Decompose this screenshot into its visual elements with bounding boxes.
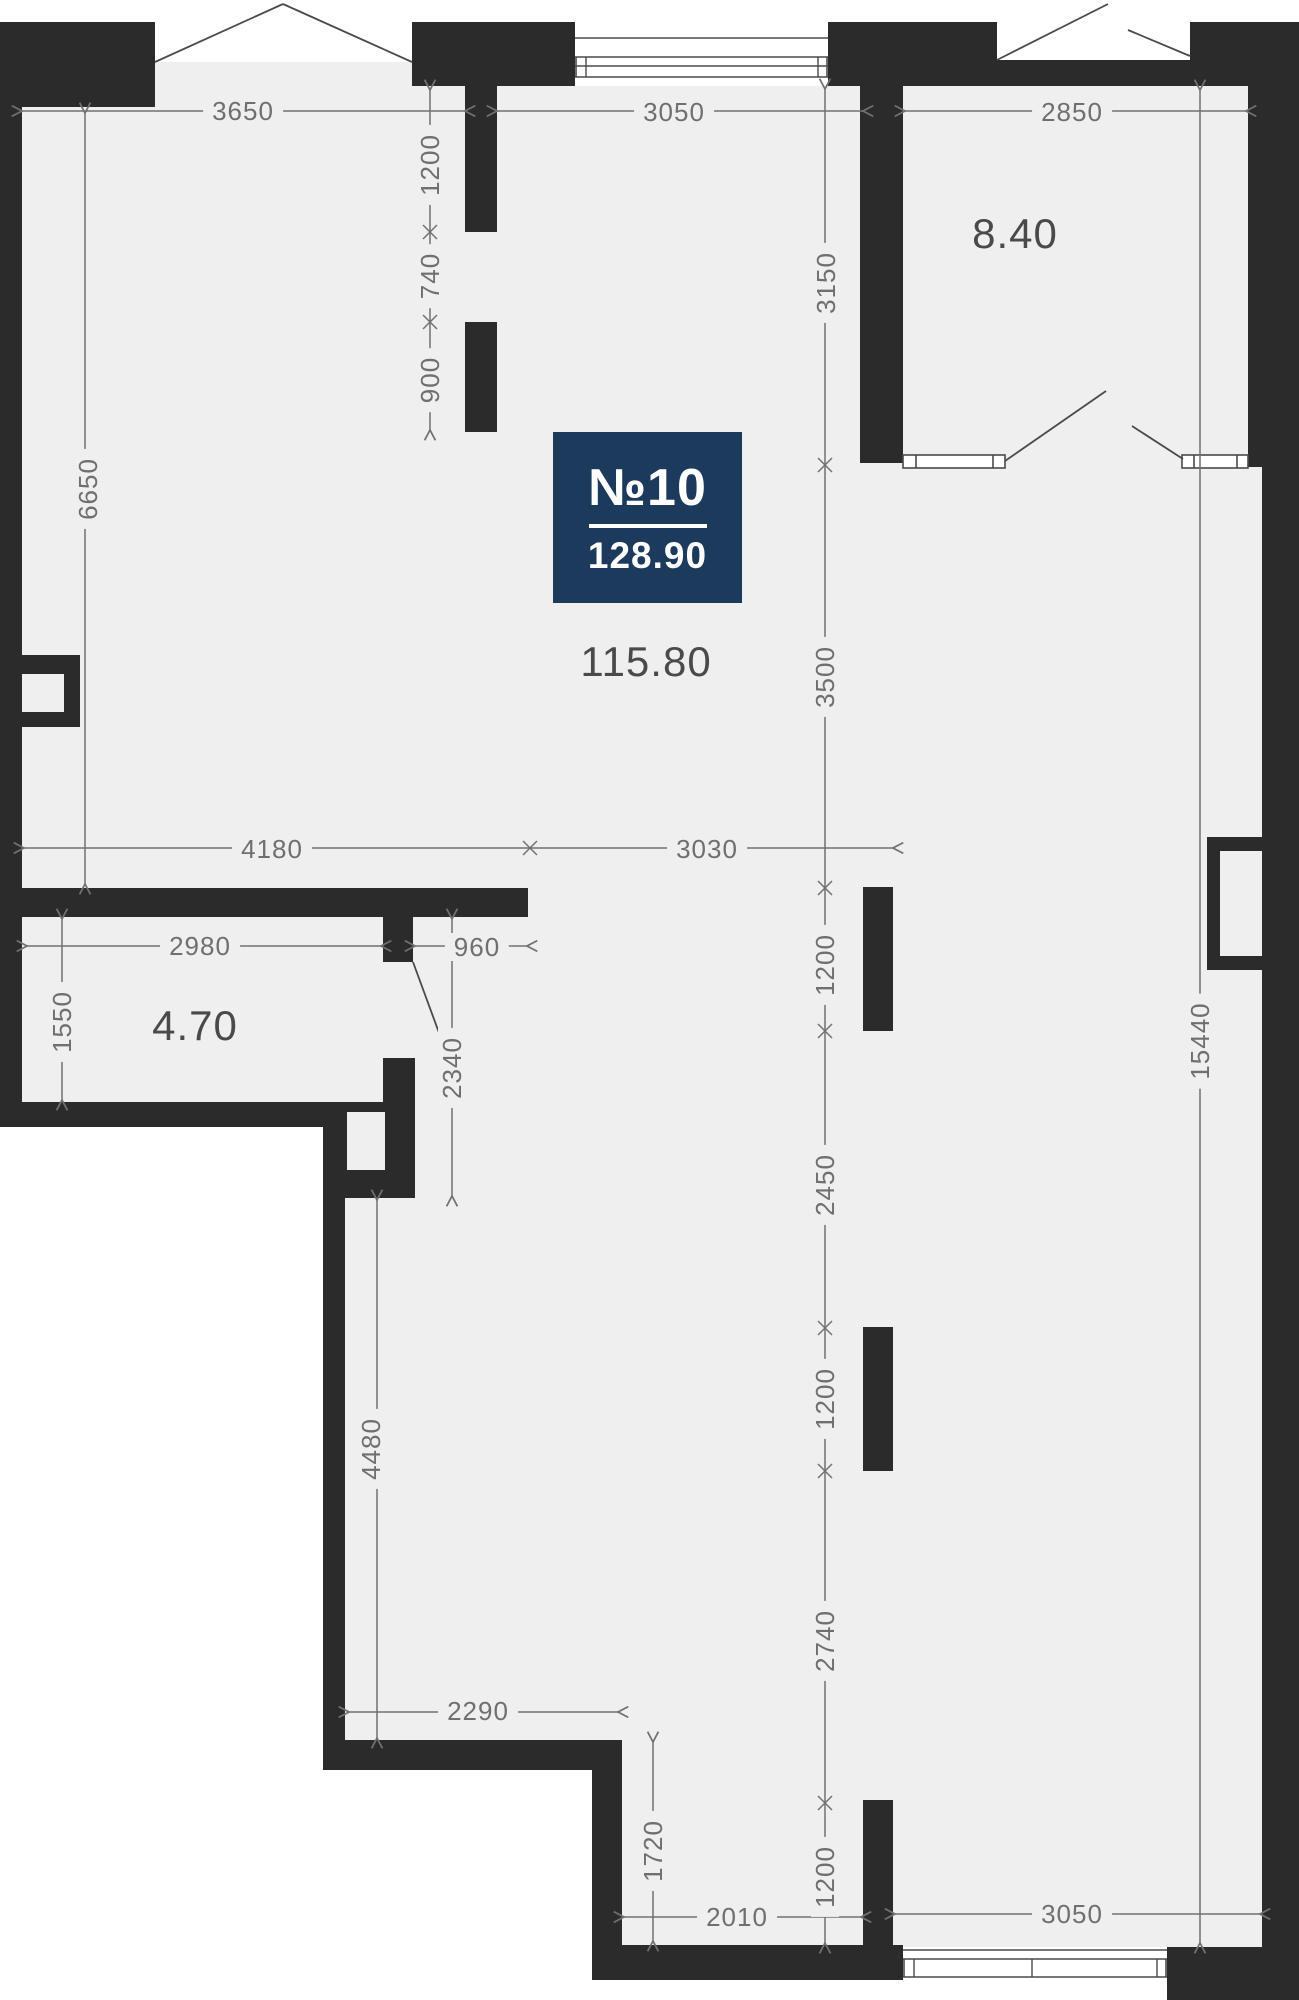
dim-label: 3050 xyxy=(634,98,714,126)
dim-label: 740 xyxy=(416,244,444,308)
room-area-main: 115.80 xyxy=(580,641,711,683)
wall-segment xyxy=(1262,467,1299,1947)
wall-segment xyxy=(0,888,528,917)
dim-label: 2450 xyxy=(811,1145,839,1225)
dim-label: 6650 xyxy=(74,449,102,529)
dim-label: 900 xyxy=(416,348,444,412)
wall-segment xyxy=(0,22,155,107)
room-area-loggia: 8.40 xyxy=(972,213,1058,255)
duct-cavity-right xyxy=(1220,851,1262,956)
dim-label: 2290 xyxy=(438,1697,518,1725)
floorplan-drawing xyxy=(0,0,1299,2000)
dim-label: 1200 xyxy=(811,1359,839,1439)
dim-label: 1720 xyxy=(639,1811,667,1891)
wall-pier xyxy=(863,1327,893,1471)
dim-label: 960 xyxy=(445,933,509,961)
dim-label: 1200 xyxy=(811,1837,839,1917)
unit-badge: №10 128.90 xyxy=(553,432,742,603)
dim-label: 2850 xyxy=(1032,98,1112,126)
dim-label: 3650 xyxy=(203,97,283,125)
dim-label: 3050 xyxy=(1032,1900,1112,1928)
window-top xyxy=(575,22,828,86)
wall-segment xyxy=(622,1945,903,1980)
dim-label: 2010 xyxy=(697,1903,777,1931)
dim-label: 2340 xyxy=(438,1028,466,1108)
room-area-bathroom: 4.70 xyxy=(152,1005,238,1047)
wall-pier xyxy=(863,1800,893,1945)
dim-label: 3500 xyxy=(811,637,839,717)
badge-divider xyxy=(589,524,707,528)
dim-label: 2980 xyxy=(160,932,240,960)
dim-label: 1200 xyxy=(416,125,444,205)
wall-segment xyxy=(1248,22,1299,467)
wall-segment xyxy=(465,86,497,232)
wall-segment xyxy=(383,917,413,962)
dim-label: 1550 xyxy=(48,982,76,1062)
window-bottom xyxy=(903,1947,1167,1980)
wall-segment xyxy=(383,1058,415,1102)
duct-cavity-left xyxy=(22,674,64,712)
wall-segment xyxy=(465,322,497,432)
dim-label: 3030 xyxy=(667,835,747,863)
wall-segment xyxy=(860,86,903,463)
loggia-top-opening xyxy=(997,22,1190,60)
wall-pier xyxy=(863,887,893,1031)
dim-label: 4180 xyxy=(232,835,312,863)
niche-cavity xyxy=(347,1112,385,1170)
wall-segment xyxy=(323,1740,622,1770)
wall-segment xyxy=(592,1770,622,1980)
wall-segment xyxy=(0,107,22,1127)
dim-label: 3150 xyxy=(812,243,840,323)
unit-total-area: 128.90 xyxy=(588,537,707,574)
wall-segment xyxy=(323,1198,345,1740)
entry-opening xyxy=(155,22,412,62)
wall-segment xyxy=(412,22,575,86)
dim-label: 1200 xyxy=(811,925,839,1005)
wall-segment xyxy=(1167,1947,1299,2000)
floorplan-unit-10: 3650 3050 2850 1200 740 900 6650 3150 35… xyxy=(0,0,1299,2000)
dim-label: 4480 xyxy=(357,1409,385,1489)
dim-label: 2740 xyxy=(811,1601,839,1681)
unit-number: №10 xyxy=(588,462,707,514)
dim-label: 15440 xyxy=(1186,993,1214,1088)
